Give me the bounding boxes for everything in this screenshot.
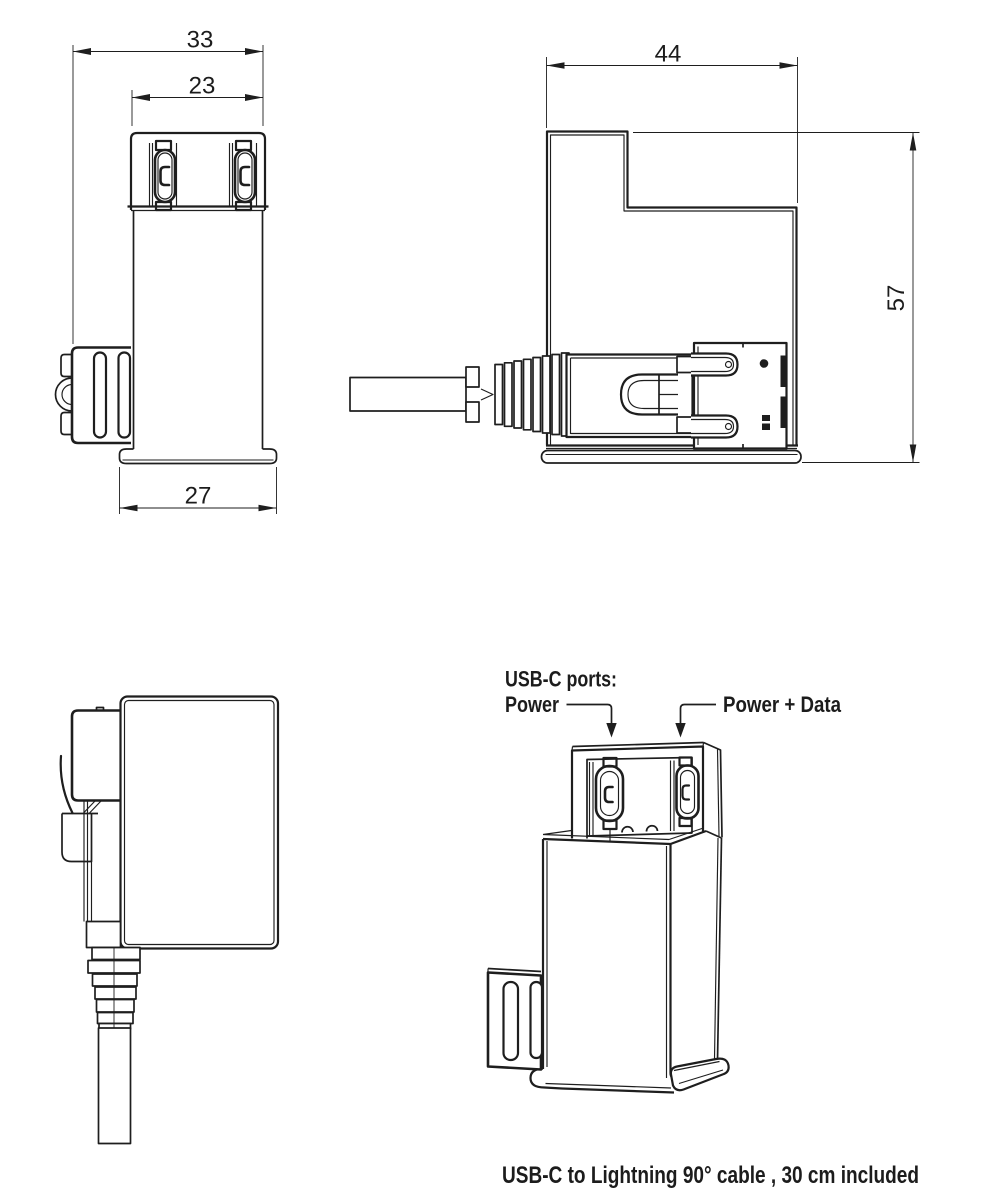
latch-prong-top [691,354,738,376]
body-right-edge [671,844,677,1078]
usb-c-port-left-perspective [590,758,624,841]
mounting-clip-side [72,711,120,801]
arrowhead [73,48,91,55]
side-view: 44 57 [350,41,920,464]
strain-relief-rib [95,987,136,999]
housing-floor [587,833,692,836]
device-body-inner [125,701,275,945]
technical-drawing-page: 33 23 [0,0,982,1200]
strain-relief-rib [98,1013,134,1024]
port-rails [590,762,594,836]
latch-prong-bottom [691,416,738,438]
ledge-front [543,839,671,844]
arrowhead [910,445,917,463]
strain-relief-rib [92,948,140,960]
connector-hatch [84,801,102,813]
port-housing-front [128,133,269,211]
device-body-front [120,211,277,464]
strain-relief-rib [505,363,513,427]
base-bar [671,1059,729,1091]
clip-tab [61,355,72,377]
dimension-depth: 44 [547,41,798,204]
cable [350,378,466,412]
cable-caption: USB-C to Lightning 90° cable , 30 cm inc… [502,1162,919,1189]
leader-arrow-right [675,723,685,738]
contact-bar [781,397,786,429]
usb-c-port-left [150,141,177,210]
arrowhead [245,48,263,55]
dimension-base-width: 27 [120,467,277,514]
rotated-side-view [61,697,278,1144]
arrowhead [259,505,277,512]
arrowhead [120,505,138,512]
strain-relief-rib [93,974,138,986]
dim-44-label: 44 [655,41,682,68]
base-flange-side [542,451,802,464]
power-data-port-label: Power + Data [723,692,842,717]
base-front-lip [531,1069,675,1093]
dim-27-label: 27 [185,483,212,510]
indicator-hole [760,359,769,368]
port-pill [677,766,699,819]
device-body-outline [121,697,279,949]
arrowhead [910,133,917,151]
strain-relief-rib [495,365,503,425]
dim-23-label: 23 [189,73,216,100]
strain-relief-tab [466,402,479,422]
housing-right-inner [718,750,720,837]
body-back-edge [718,838,722,1061]
arrowhead [780,62,798,69]
leader-arrow-left [606,723,616,738]
clip-tab [61,413,72,435]
clip-slot [504,982,519,1060]
base-flange [120,449,277,464]
perspective-view: USB-C ports: Power Power + Data [488,667,842,1093]
mounting-clip-front [56,348,132,444]
contact-bar [781,356,786,388]
strain-relief-collar [87,922,121,948]
strain-relief-rib [514,361,522,428]
port-housing-perspective [572,743,722,842]
dimension-port-section-width: 23 [132,73,263,127]
adapter-technical-drawing: 33 23 [0,0,982,1200]
clip-hook-arc [56,378,72,411]
strain-relief-tab [466,367,479,387]
strain-relief-rib [524,359,532,430]
strain-relief-notch [481,389,493,400]
dim-33-label: 33 [187,27,214,54]
regulatory-mark [762,424,770,431]
clip-top-back [488,969,541,972]
power-port-label: Power [505,692,559,717]
strain-relief-rib [552,355,560,435]
strain-relief-rib [533,358,541,432]
device-body-perspective [531,828,729,1093]
cable-down [99,1028,131,1144]
strain-relief-rib [543,356,551,433]
cable-assembly-side [350,353,569,436]
leader-line-right [681,705,717,724]
arrowhead [132,94,150,101]
floor-hole [646,826,657,832]
clip-hook-arc-inner [62,385,72,405]
usb-c-ports-heading: USB-C ports: [505,667,617,692]
housing-top-back [573,743,704,747]
regulatory-mark [762,415,770,421]
extension-line [547,57,798,203]
arrowhead [547,62,565,69]
usb-c-port-right [230,141,257,210]
strain-relief-rib [97,1000,135,1013]
dim-57-label: 57 [883,285,910,312]
port-rails [671,761,675,832]
latch-rail [677,417,693,433]
floor-hole [622,827,633,833]
latch-rail [677,357,693,373]
clip-slot [531,982,543,1058]
arrowhead [245,94,263,101]
clip-slot [94,353,106,438]
clip-slot [119,353,131,438]
connector-side [567,343,787,449]
base-lip-inner [546,1084,672,1089]
front-view: 33 23 [56,27,277,515]
mounting-clip-perspective [488,969,542,1070]
usb-c-port-right-perspective [671,758,699,832]
body-sides [134,211,263,450]
leader-line-left [567,705,612,724]
